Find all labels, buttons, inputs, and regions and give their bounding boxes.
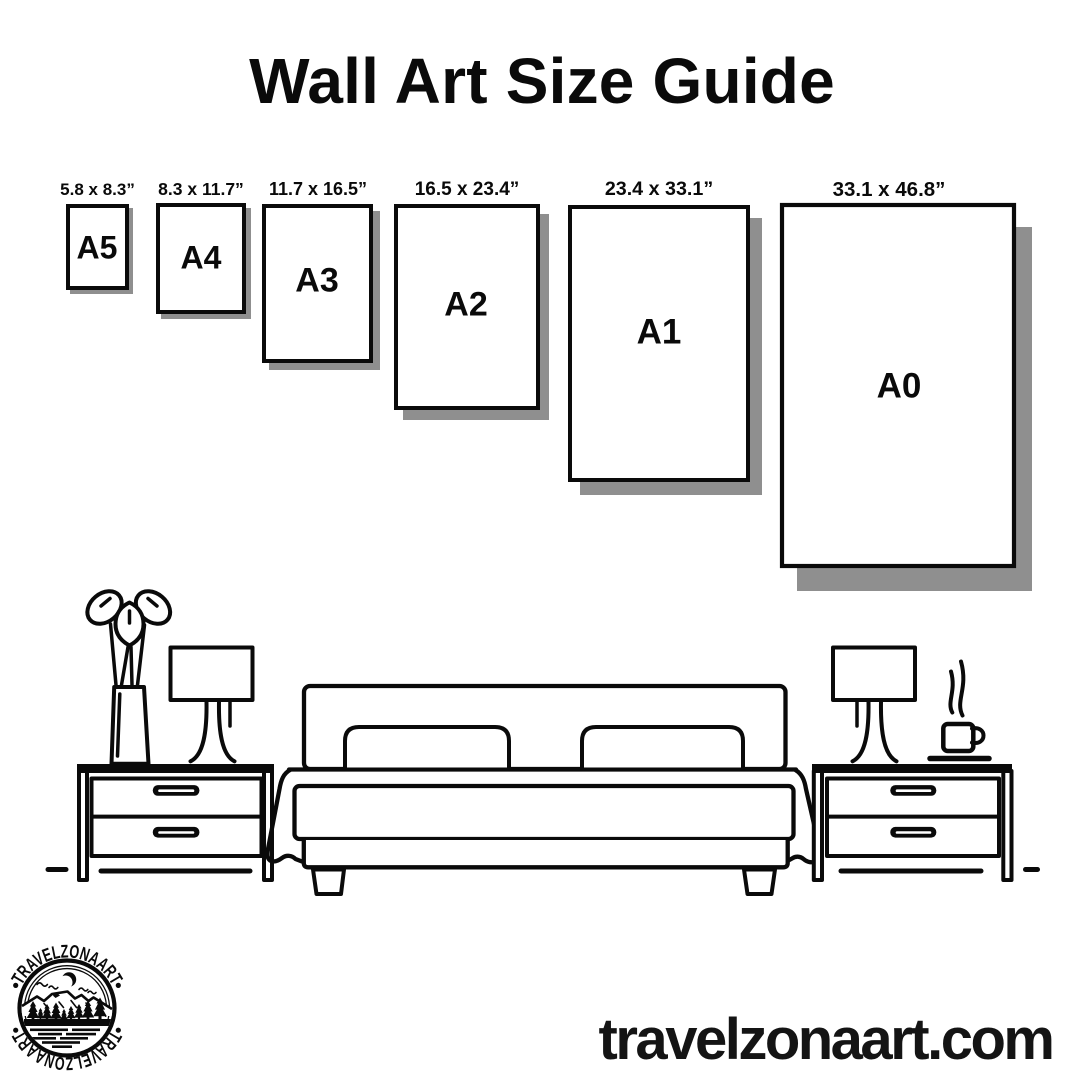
svg-text:travelzonaart.com: travelzonaart.com <box>599 1007 1053 1072</box>
svg-text:Wall Art Size Guide: Wall Art Size Guide <box>249 45 835 117</box>
svg-text:16.5 x 23.4”: 16.5 x 23.4” <box>415 179 520 200</box>
svg-text:8.3 x 11.7”: 8.3 x 11.7” <box>158 179 244 199</box>
svg-text:A3: A3 <box>295 261 338 299</box>
svg-text:11.7 x 16.5”: 11.7 x 16.5” <box>269 179 367 199</box>
svg-text:23.4 x 33.1”: 23.4 x 33.1” <box>605 178 713 200</box>
svg-text:A4: A4 <box>181 240 222 276</box>
svg-text:A2: A2 <box>444 285 487 323</box>
svg-text:A5: A5 <box>77 230 118 266</box>
svg-text:A0: A0 <box>877 366 922 405</box>
svg-text:5.8 x 8.3”: 5.8 x 8.3” <box>60 180 135 199</box>
svg-text:33.1 x 46.8”: 33.1 x 46.8” <box>833 178 946 201</box>
svg-text:A1: A1 <box>637 313 682 352</box>
